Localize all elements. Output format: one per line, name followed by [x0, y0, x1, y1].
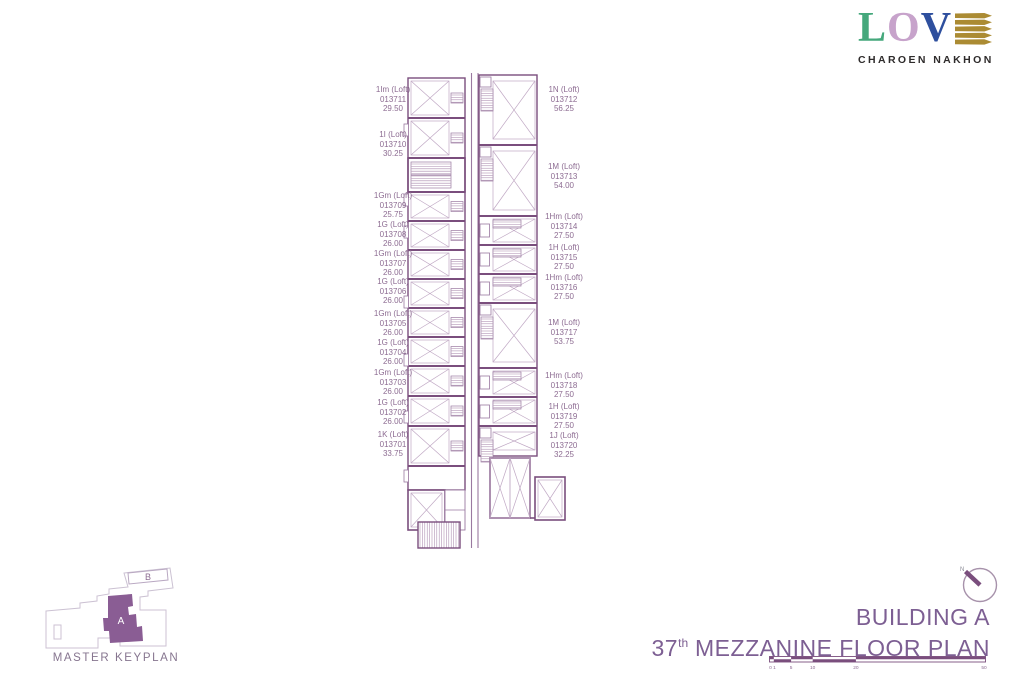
brand-logo: L O V CHAROEN NAKHON	[858, 8, 992, 66]
compass-icon: N	[956, 563, 1004, 607]
unit-label: 1K (Loft)01370133.75	[353, 430, 433, 459]
unit-label: 1H (Loft)01371927.50	[524, 402, 604, 431]
keyplan-building-b-label: B	[145, 572, 151, 582]
unit-label: 1Gm (Loft)01370726.00	[353, 249, 433, 278]
scale-mark: 20	[853, 665, 859, 671]
unit-label: 1Hm (Loft)01371827.50	[524, 371, 604, 400]
master-keyplan: B A	[40, 563, 180, 653]
unit-label: 1N (Loft)01371256.25	[524, 85, 604, 114]
scale-mark: 50	[981, 665, 987, 671]
unit-label: 1H (Loft)01371527.50	[524, 243, 604, 272]
unit-label: 1G (Loft)01370426.00	[353, 338, 433, 367]
logo-letter-o: O	[887, 8, 921, 48]
unit-label: 1J (Loft)01372032.25	[524, 431, 604, 460]
unit-label: 1Hm (Loft)01371627.50	[524, 273, 604, 302]
unit-label: 1M (Loft)01371753.75	[524, 318, 604, 347]
compass-north-label: N	[960, 567, 964, 573]
unit-label: 1Gm (Loft)01370526.00	[353, 309, 433, 338]
scale-bar: 0 1 5 10 20 50	[769, 656, 989, 674]
scale-mark: 0	[769, 665, 772, 671]
logo-stacked-e-icon	[955, 10, 992, 48]
page: L O V CHAROEN NAKHON 1Im (Loft)01371129.…	[0, 0, 1024, 683]
unit-label: 1G (Loft)01370226.00	[353, 398, 433, 427]
logo-letter-l: L	[858, 8, 887, 48]
keyplan-building-a-label: A	[118, 616, 125, 627]
unit-label: 1Gm (Loft)01370326.00	[353, 368, 433, 397]
unit-label: 1Gm (Loft)01370925.75	[353, 191, 433, 220]
unit-label: 1Hm (Loft)01371427.50	[524, 212, 604, 241]
scale-mark: 5	[790, 665, 793, 671]
sheet-title: BUILDING A 37th MEZZANINE FLOOR PLAN	[652, 604, 990, 661]
keyplan-caption: MASTER KEYPLAN	[48, 652, 184, 664]
sheet-title-line1: BUILDING A	[652, 604, 990, 630]
scale-mark: 10	[810, 665, 816, 671]
logo-subtitle: CHAROEN NAKHON	[858, 54, 992, 66]
logo-word: L O V	[858, 8, 992, 48]
logo-letter-v: V	[921, 8, 952, 48]
scale-mark: 1	[773, 665, 776, 671]
keyplan-courtyard	[54, 625, 61, 639]
unit-label: 1M (Loft)01371354.00	[524, 162, 604, 191]
unit-label: 1G (Loft)01370626.00	[353, 277, 433, 306]
unit-label: 1Im (Loft)01371129.50	[353, 85, 433, 114]
unit-label: 1G (Loft)01370826.00	[353, 220, 433, 249]
unit-label: 1I (Loft)01371030.25	[353, 130, 433, 159]
